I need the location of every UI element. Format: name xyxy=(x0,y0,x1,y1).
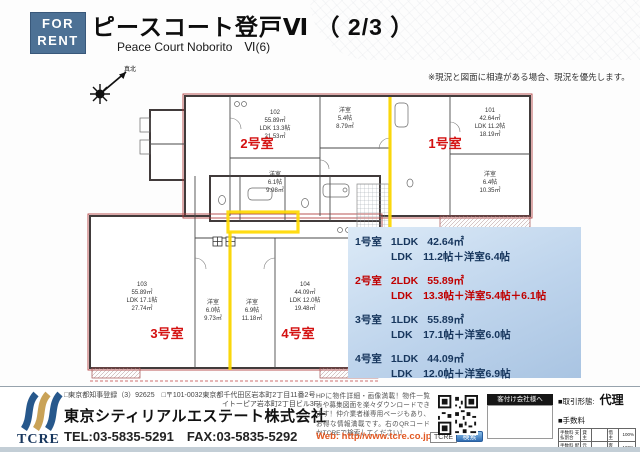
fee-label: ■手数料 xyxy=(558,415,636,426)
room-area: 55.89㎡ xyxy=(427,314,464,326)
agent-box-blank xyxy=(487,405,553,439)
deal-type-line: ■取引形態:代理 xyxy=(558,391,636,408)
unit3-label: 3号室 xyxy=(150,326,183,341)
registration-line1: □東京都知事登録（3）92625 □〒101-0032東京都千代田区岩本町2丁目… xyxy=(64,391,318,400)
fee-blank-cell xyxy=(592,429,607,442)
badge-line2: RENT xyxy=(37,33,78,50)
disclaimer-note: ※現況と図面に相違がある場合、現況を優先します。 xyxy=(428,71,630,83)
room-label-line: 55.89㎡ xyxy=(264,116,285,124)
for-rent-badge: FOR RENT xyxy=(30,12,86,54)
room-label-line: 6.9帖 xyxy=(245,306,259,314)
badge-line1: FOR xyxy=(42,16,74,33)
room-area: 44.09㎡ xyxy=(427,353,464,365)
room-label-line: 8.79㎡ xyxy=(336,122,354,130)
footer-bar: TCRE □東京都知事登録（3）92625 □〒101-0032東京都千代田区岩… xyxy=(0,386,640,448)
unit2-label: 2号室 xyxy=(240,136,273,151)
qr-code xyxy=(438,395,478,435)
tel-fax: TEL:03-5835-5291 FAX:03-5835-5292 xyxy=(64,426,297,445)
website-url[interactable]: Web: http//www.tcre.co.jp xyxy=(316,431,432,442)
agent-box-header: 客付け会社様へ xyxy=(487,394,553,405)
room-type: 2LDK xyxy=(391,275,418,287)
fee-payer-left: 貸主 xyxy=(581,429,592,442)
room-label-line: 27.74㎡ xyxy=(131,304,152,312)
room-type: 1LDK xyxy=(391,353,418,365)
room-type: 1LDK xyxy=(391,314,418,326)
room-label-line: 洋室 xyxy=(339,106,351,114)
room-label-line: LDK 12.0帖 xyxy=(289,296,320,304)
room-label-line: 104 xyxy=(300,282,311,288)
room-label-line: 5.4帖 xyxy=(338,114,352,122)
room-label-line: 18.19㎡ xyxy=(479,130,500,138)
fee-payer-right: 借主 xyxy=(607,429,618,442)
room-label-line: 101 xyxy=(485,108,496,114)
room-label-line: 9.73㎡ xyxy=(204,314,222,322)
room-label-line: 6.4帖 xyxy=(483,178,497,186)
room-detail: LDK 17.1帖＋洋室6.0帖 xyxy=(355,327,581,342)
room-no: 3号室 xyxy=(355,314,382,326)
page-title: ピースコート登戸Ⅵ （ 2/3 ） xyxy=(92,8,414,42)
room-label-line: LDK 11.2帖 xyxy=(475,122,506,130)
room-label-line: 6.1帖 xyxy=(268,178,282,186)
unit3-info-row: 3号室1LDK55.89㎡ LDK 17.1帖＋洋室6.0帖 xyxy=(355,312,581,342)
room-label-line: 11.18㎡ xyxy=(242,314,263,322)
room-area: 42.64㎡ xyxy=(427,236,464,248)
room-label-line: 洋室 xyxy=(484,170,496,178)
deal-type-label: ■取引形態: xyxy=(558,397,595,406)
room-no: 1号室 xyxy=(355,236,382,248)
flyer-page: FOR RENT ピースコート登戸Ⅵ （ 2/3 ） Peace Court N… xyxy=(0,0,640,452)
bottom-edge-strip xyxy=(0,447,640,452)
deal-terms-column: ■取引形態:代理 ■手数料 手数料 支払割合 貸主 借主 100% 手数料 配分… xyxy=(558,391,636,452)
unit4-label: 4号室 xyxy=(281,326,314,341)
room-no: 2号室 xyxy=(355,275,382,287)
room-detail: LDK 11.2帖＋洋室6.4帖 xyxy=(355,249,581,264)
fee-row: 手数料 支払割合 貸主 借主 100% xyxy=(559,429,636,442)
room-label-line: 9.98㎡ xyxy=(266,186,284,194)
fee-percent: 100% xyxy=(618,429,635,442)
company-name: 東京シティリアルエステート株式会社 xyxy=(64,405,326,426)
room-area: 55.89㎡ xyxy=(427,275,464,287)
room-label-line: 洋室 xyxy=(246,298,258,306)
room-label-line: 103 xyxy=(137,282,148,288)
page-subtitle: Peace Court Noborito Ⅵ(6) xyxy=(117,38,270,55)
room-label-line: 55.89㎡ xyxy=(131,288,152,296)
fee-row-label: 手数料 支払割合 xyxy=(559,429,581,442)
room-label-line: LDK 13.3帖 xyxy=(259,124,290,132)
room-label-line: 19.48㎡ xyxy=(294,304,315,312)
unit-info-panel: 1号室1LDK42.64㎡ LDK 11.2帖＋洋室6.4帖 2号室2LDK55… xyxy=(348,227,581,378)
room-label-line: 洋室 xyxy=(207,298,219,306)
room-type: 1LDK xyxy=(391,236,418,248)
room-detail: LDK 13.3帖＋洋室5.4帖＋6.1帖 xyxy=(355,288,581,303)
room-label-line: 44.09㎡ xyxy=(294,288,315,296)
unit2-info-row: 2号室2LDK55.89㎡ LDK 13.3帖＋洋室5.4帖＋6.1帖 xyxy=(355,273,581,303)
room-no: 4号室 xyxy=(355,353,382,365)
room-label-line: 6.0帖 xyxy=(206,306,220,314)
room-label-line: 洋室 xyxy=(269,170,281,178)
unit4-info-row: 4号室1LDK44.09㎡ LDK 12.0帖＋洋室6.9帖 xyxy=(355,351,581,381)
unit1-info-row: 1号室1LDK42.64㎡ LDK 11.2帖＋洋室6.4帖 xyxy=(355,234,581,264)
compass-label: 真北 xyxy=(124,65,136,73)
room-detail: LDK 12.0帖＋洋室6.9帖 xyxy=(355,366,581,381)
unit1-label: 1号室 xyxy=(428,136,461,151)
room-label-line: 42.64㎡ xyxy=(479,114,500,122)
room-label-line: LDK 17.1帖 xyxy=(126,296,157,304)
logo-text: TCRE xyxy=(17,432,60,445)
room-label-line: 102 xyxy=(270,110,281,116)
room-label-line: 10.35㎡ xyxy=(479,186,500,194)
deal-type-value: 代理 xyxy=(600,393,624,407)
